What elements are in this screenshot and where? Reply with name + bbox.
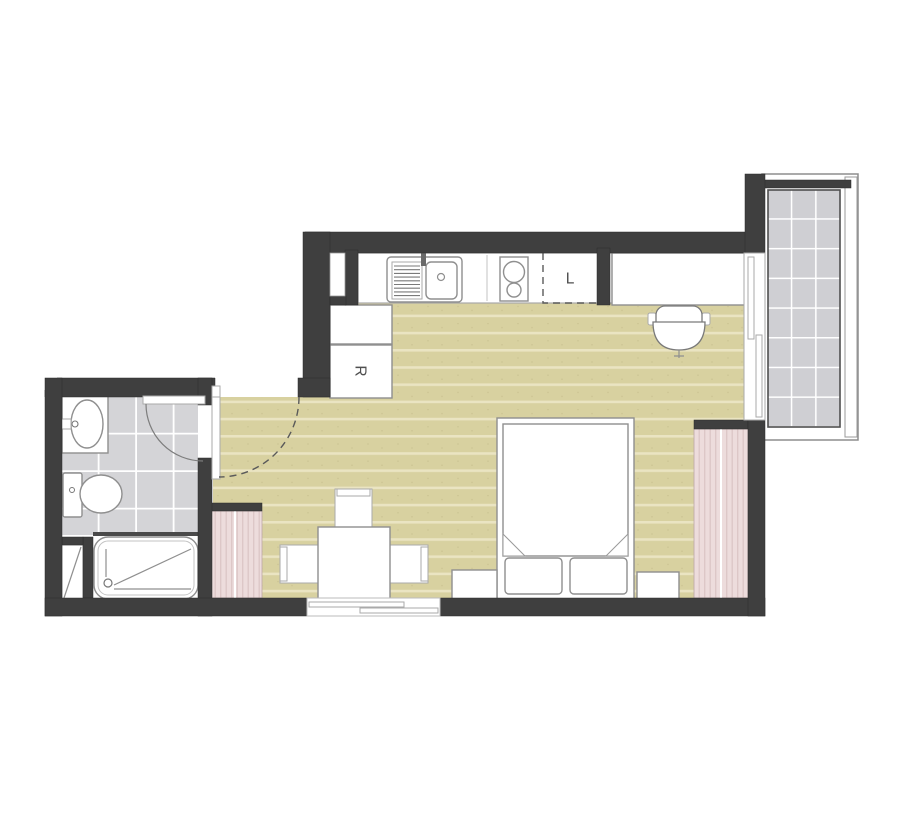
service-shaft [62,545,83,600]
entry-door-jamb [212,386,220,397]
wall-niche-stub [345,250,358,305]
wardrobe-left [205,503,262,598]
floor-plan: L R [0,0,901,827]
toilet-bowl [80,475,122,513]
tub-drain [104,579,112,587]
balcony-tiles [768,190,840,427]
wall-bathroom-right [198,458,212,616]
wall-top [305,232,763,253]
balcony-screen-wall [762,180,851,188]
wall-bottom-left [45,598,307,616]
wardrobe-rail [694,420,748,429]
stove [500,257,528,301]
sliding-pane [756,335,762,417]
toilet-tank [63,473,82,517]
shaft-wall-side [83,537,93,598]
dining-chair [335,489,372,527]
wardrobe-right [694,420,748,598]
refrigerator: R [330,345,392,398]
kitchen-cabinet [330,305,392,344]
dining-chair [390,545,428,583]
bathroom-door-leaf [143,396,205,404]
wall-right [748,420,765,616]
wall-bottom-right [440,598,765,616]
window [307,598,440,616]
wardrobe-rail [205,503,262,511]
wall-top-right [745,174,765,253]
dining-table [318,527,390,600]
wall-niche-bottom [330,296,346,305]
floor-plan-canvas: L R [0,0,901,827]
wall-kitchen-left [303,232,330,397]
wall-kitchen-mid-stub [597,248,610,305]
nightstand-left [452,570,497,599]
bathtub [94,537,198,599]
wall-bathroom-top [45,378,215,397]
wall-niche [330,253,345,296]
entry-door-leaf [212,397,220,479]
basin-tap [61,419,71,429]
wall-bathroom-left [45,378,62,616]
shower-partition [93,532,198,536]
refrigerator-label: R [352,365,369,376]
pillow [505,558,562,594]
window-pane [309,602,404,607]
kitchen-sink [387,251,462,302]
window-pane [360,608,438,613]
burner-large [504,262,525,283]
bed-duvet [503,424,628,556]
balcony [762,174,858,440]
desk [612,253,745,305]
sliding-pane [748,257,754,339]
nightstand-right [637,572,679,599]
balcony-railing [845,177,857,437]
wall-entry-top [298,378,330,397]
bed [497,418,634,599]
bathroom-vanity [61,396,108,453]
sink-drain [438,274,445,281]
burner-small [507,283,521,297]
shaft-wall-top [62,537,83,545]
laundry-label: L [566,270,575,287]
pillow [570,558,627,594]
dining-chair [280,545,318,583]
balcony-sliding-door [744,253,765,420]
